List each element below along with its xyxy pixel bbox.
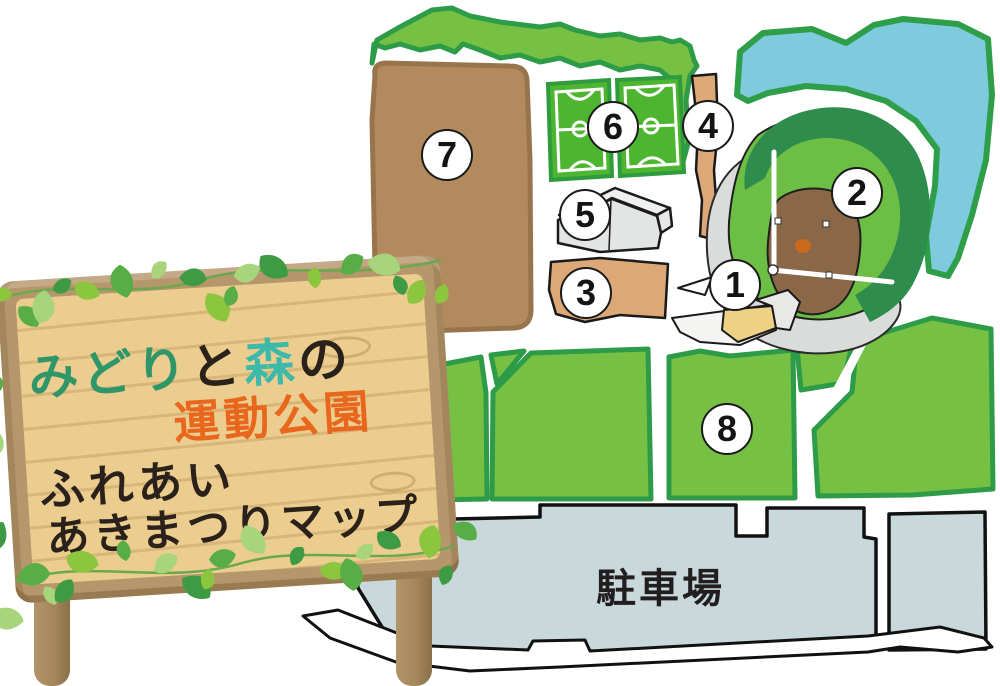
leaf-vines: [0, 223, 485, 652]
marker-8: 8: [701, 403, 753, 455]
pitchers-mound: [795, 239, 811, 253]
marker-6: 6: [587, 101, 639, 153]
marker-1: 1: [709, 259, 761, 311]
home-plate: [768, 265, 778, 275]
festival-map-poster: 1 2 3 4 5 6 7 8 駐車場 みどりと森の 運動公園 ふれあい あきま…: [0, 0, 1000, 686]
marker-7: 7: [421, 129, 473, 181]
marker-4: 4: [682, 100, 734, 152]
wooden-sign: みどりと森の 運動公園 ふれあい あきまつりマップ: [0, 254, 460, 603]
marker-3: 3: [560, 267, 612, 319]
leaves: [0, 236, 486, 637]
marker-5: 5: [559, 189, 611, 241]
parking-label: 駐車場: [596, 556, 725, 614]
lawn-piece-2: [492, 349, 651, 499]
marker-2: 2: [831, 167, 883, 219]
